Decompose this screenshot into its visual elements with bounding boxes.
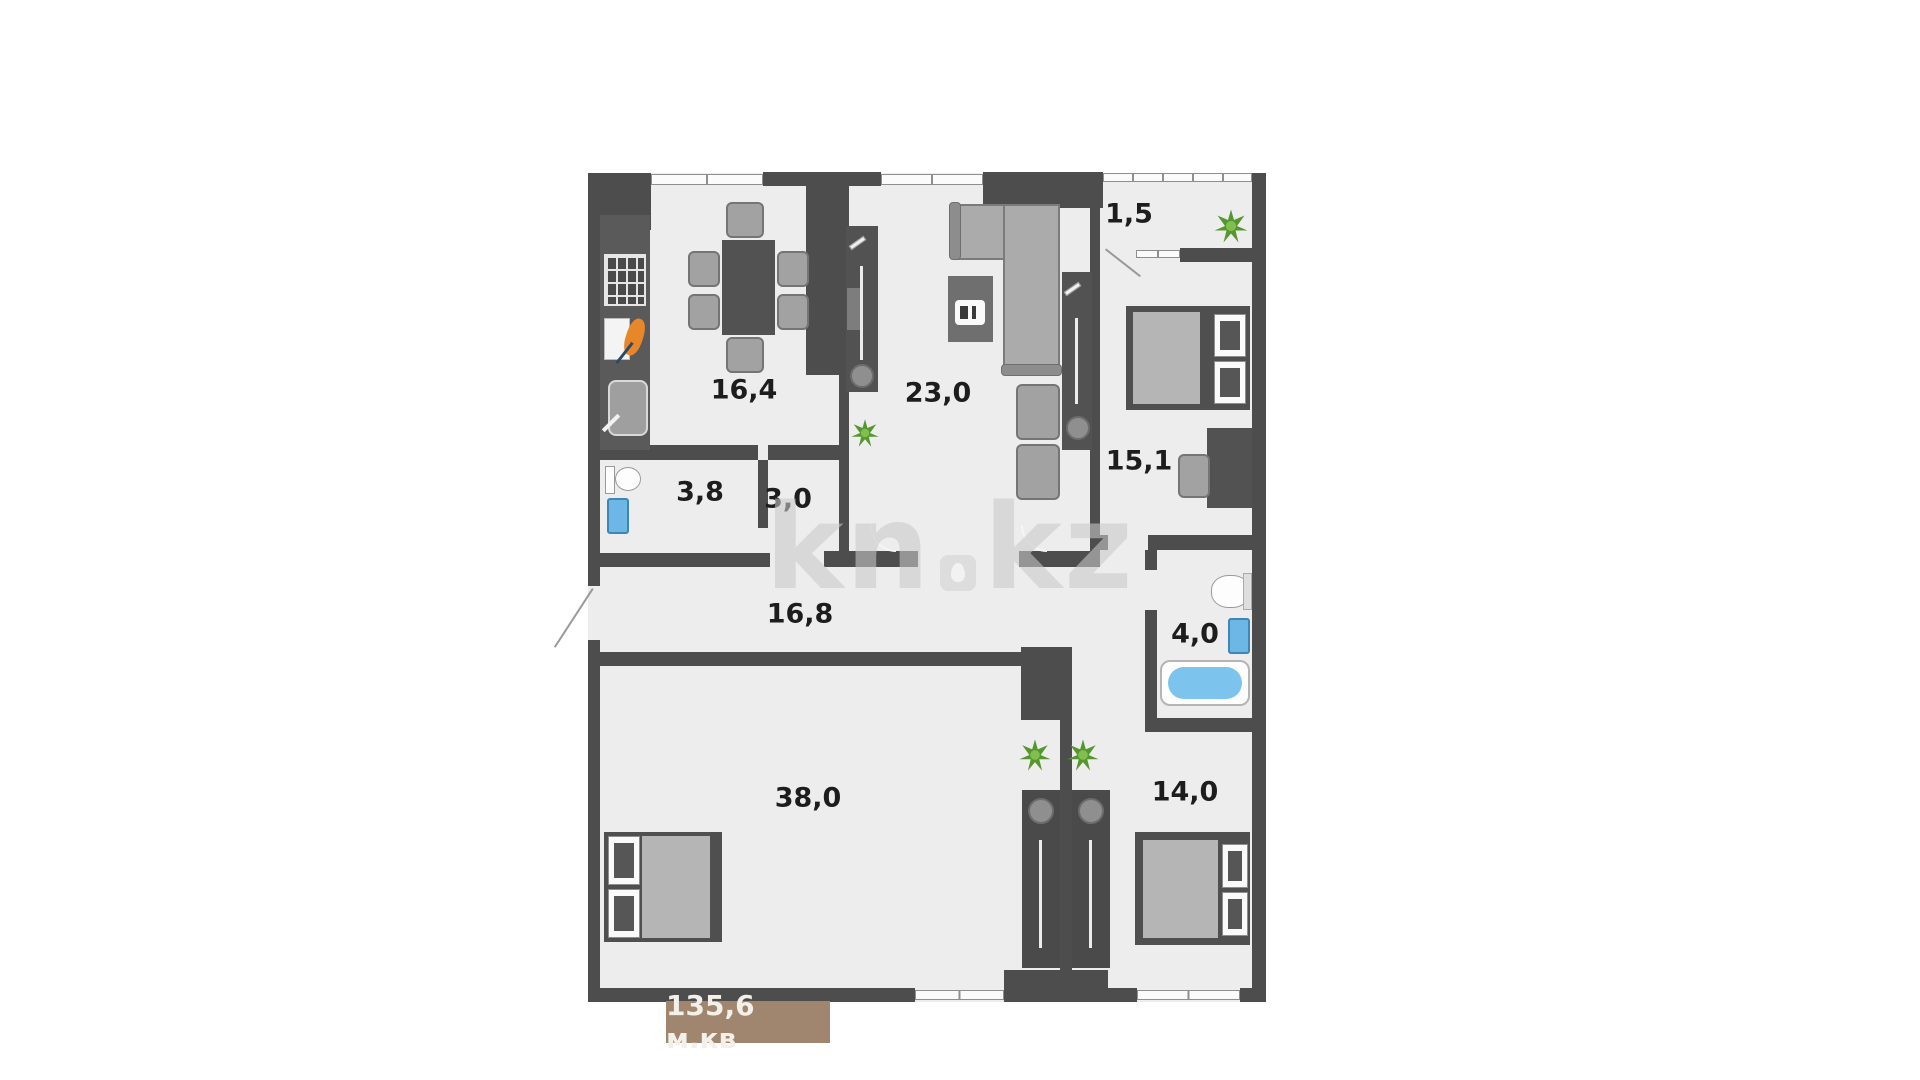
wall-bath-jamb <box>1145 550 1157 570</box>
washing-machine-small-icon <box>607 498 629 534</box>
shelf-mirror-line <box>1075 318 1078 404</box>
bedroom-bottom-window <box>1137 990 1240 1000</box>
bed-large-pillow-1 <box>608 836 640 885</box>
wall-hall-top-left <box>588 553 770 567</box>
wall-left-upper <box>588 173 600 586</box>
sofa-armrest-left <box>949 202 961 260</box>
kitchen-window <box>651 174 763 185</box>
laptop-mark-1 <box>960 306 968 319</box>
stool-icon <box>850 364 874 388</box>
wall-bedroom-right-bottom-b <box>1148 535 1266 550</box>
room-label-bedroom-large: 38,0 <box>775 783 842 814</box>
cabinet-right-line <box>1089 840 1092 948</box>
wall-bath-left <box>1145 610 1157 732</box>
wall-bedroom-right-bottom-a <box>1100 535 1108 550</box>
wall-bottom-right <box>1240 988 1266 1002</box>
wall-vent-shaft <box>806 186 839 375</box>
cabinet-right-knob <box>1078 798 1104 824</box>
plant-icon-right <box>1066 737 1100 773</box>
sofa-armrest-bottom <box>1001 364 1062 376</box>
wall-top-middle <box>763 172 881 186</box>
wall-bottom-chunk <box>1004 970 1108 990</box>
stool-icon-2 <box>1066 416 1090 440</box>
armchair-1 <box>1016 384 1060 440</box>
bed-bottom-mattress <box>1143 840 1218 938</box>
corner-sofa-vertical <box>1003 204 1060 368</box>
wall-bath-bottom <box>1145 718 1252 732</box>
chair-bottom <box>726 337 764 373</box>
chair-left-1 <box>688 251 720 287</box>
room-label-bedroom-bottom: 14,0 <box>1152 777 1219 808</box>
sink-counter <box>1243 573 1252 610</box>
chair-right-1 <box>777 251 809 287</box>
bed-right-pillow-2 <box>1214 361 1246 404</box>
toilet-tank-icon <box>605 466 615 494</box>
total-area-badge: 135,6 м.кв <box>666 1001 830 1043</box>
dining-table <box>722 240 775 335</box>
bed-bottom-pillow-1 <box>1222 844 1248 888</box>
bathtub-water <box>1168 667 1242 699</box>
wall-hall-bottom <box>600 652 1021 666</box>
washing-machine-icon <box>1228 618 1250 654</box>
floor-plan: 16,4 23,0 1,5 15,1 3,8 3,0 16,8 4,0 38,0… <box>583 168 1267 1002</box>
room-label-bathroom: 4,0 <box>1171 619 1219 650</box>
balcony-window-segment <box>1136 250 1180 258</box>
room-label-kitchen: 16,4 <box>711 375 778 406</box>
living-window <box>881 174 983 185</box>
wall-top-thick <box>983 172 1103 208</box>
kitchen-sink-icon <box>608 380 648 436</box>
wall-balcony-bottom <box>1180 248 1252 262</box>
wall-left-lower <box>588 640 600 1002</box>
room-label-hallway: 16,8 <box>767 599 834 630</box>
wall-hall-top-chunk2 <box>1019 551 1100 567</box>
armchair-2 <box>1016 444 1060 500</box>
wall-room-divider-pier <box>1021 647 1072 720</box>
bed-large-mattress <box>642 836 710 938</box>
laptop-mark-2 <box>972 306 976 319</box>
toilet-bowl-icon <box>615 467 641 491</box>
desk <box>1207 428 1252 508</box>
room-label-bedroom-right: 15,1 <box>1106 446 1173 477</box>
cabinet-left-knob <box>1028 798 1054 824</box>
chair-right-2 <box>777 294 809 330</box>
chair-top <box>726 202 764 238</box>
wall-kitchen-bottom-b <box>768 445 839 460</box>
bed-bottom-pillow-2 <box>1222 892 1248 936</box>
cabinet-left-line <box>1039 840 1042 948</box>
plant-icon-left <box>1018 737 1052 773</box>
wall-bottom-middle <box>1004 988 1137 1002</box>
room-label-living: 23,0 <box>905 378 972 409</box>
bed-large-pillow-2 <box>608 889 640 938</box>
plant-icon-living <box>850 417 880 449</box>
room-label-balcony: 1,5 <box>1105 199 1153 230</box>
chair-left-2 <box>688 294 720 330</box>
bed-right-pillow-1 <box>1214 314 1246 357</box>
desk-chair <box>1178 454 1210 498</box>
balcony-glazing <box>1103 173 1252 182</box>
plant-icon-balcony <box>1213 206 1249 246</box>
bed-right-mattress <box>1133 312 1200 404</box>
wall-right <box>1252 173 1266 1002</box>
bedroom-large-window <box>915 990 1004 1000</box>
stove-icon <box>604 254 646 306</box>
room-label-toilet: 3,8 <box>676 477 724 508</box>
room-label-corridor: 3,0 <box>764 484 812 515</box>
wall-hall-top-chunk1 <box>824 551 918 567</box>
tv-screen-line <box>860 266 863 360</box>
floorplan-page: 16,4 23,0 1,5 15,1 3,8 3,0 16,8 4,0 38,0… <box>0 0 1920 1080</box>
